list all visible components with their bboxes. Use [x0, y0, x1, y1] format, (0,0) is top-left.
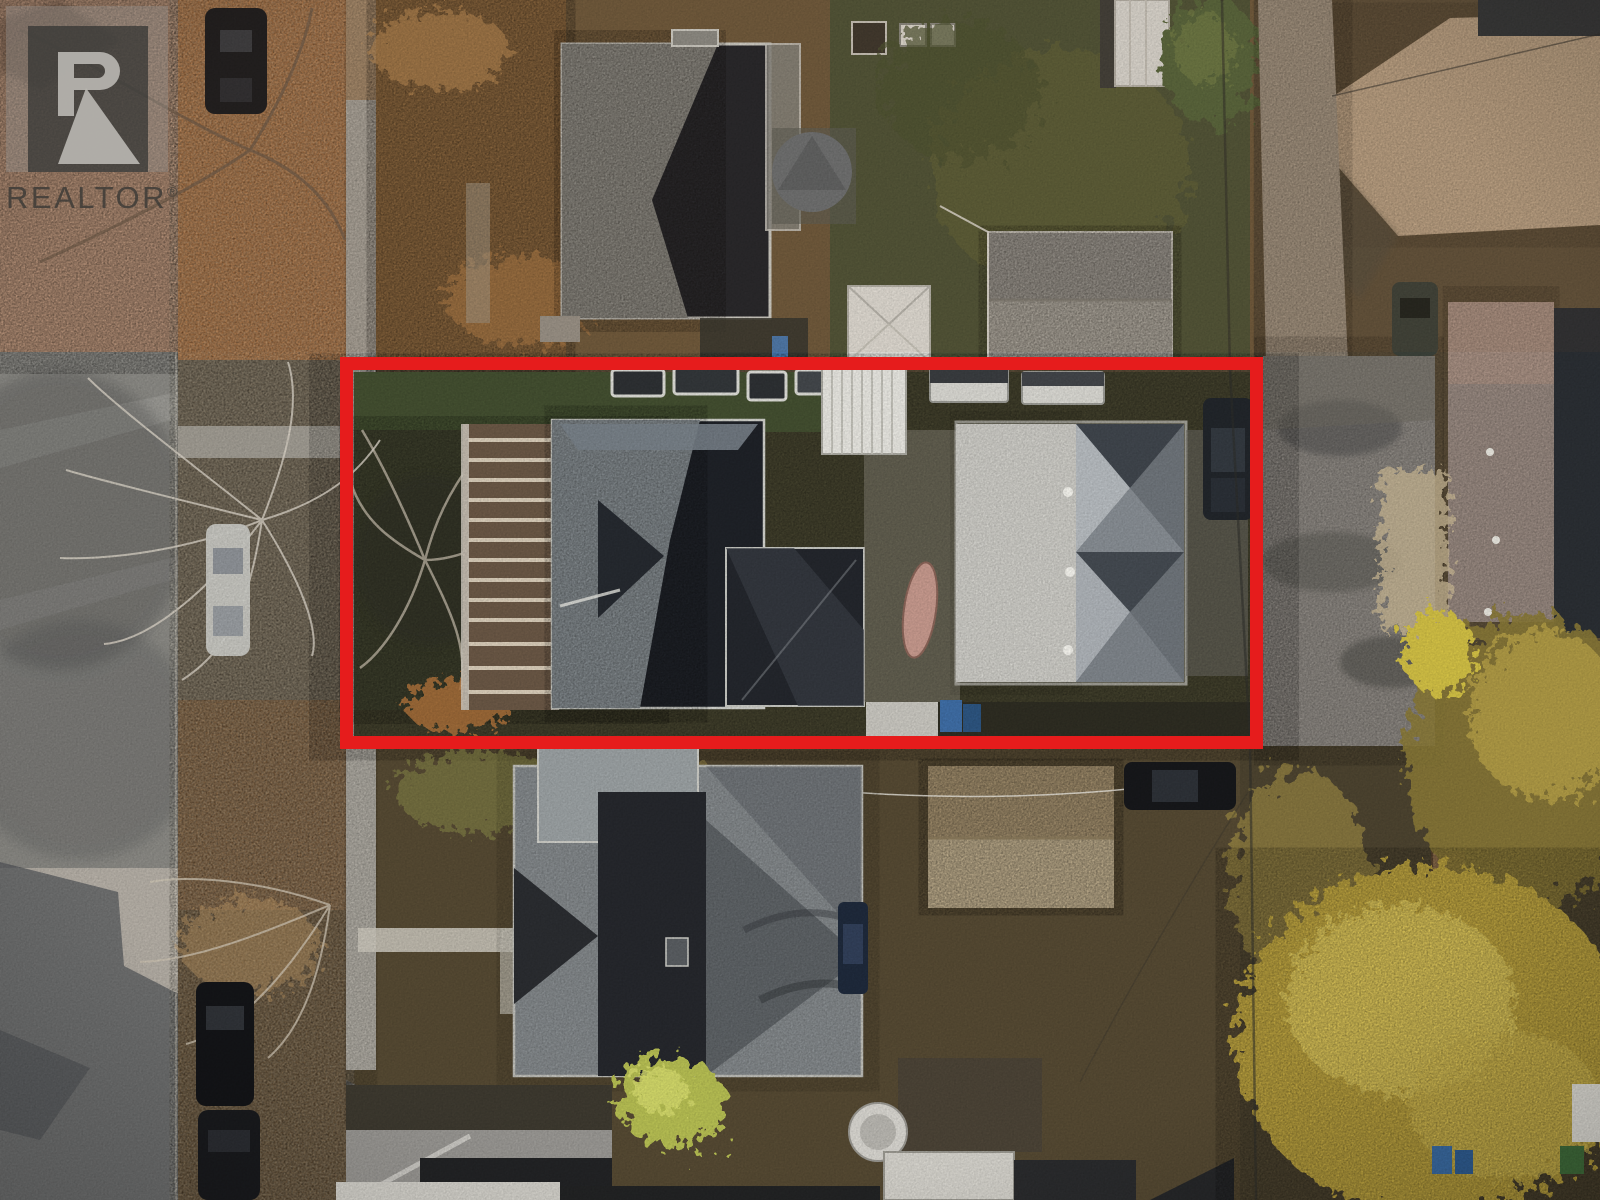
aerial-photo: REALTOR® [0, 0, 1600, 1200]
registered-mark: ® [167, 184, 177, 200]
watermark-brand: REALTOR® [6, 180, 226, 216]
realtor-r-icon [28, 26, 148, 172]
aerial-scene [0, 0, 1600, 1200]
realtor-logo [6, 6, 168, 172]
watermark: REALTOR® [6, 6, 226, 216]
vignette [0, 0, 1600, 1200]
